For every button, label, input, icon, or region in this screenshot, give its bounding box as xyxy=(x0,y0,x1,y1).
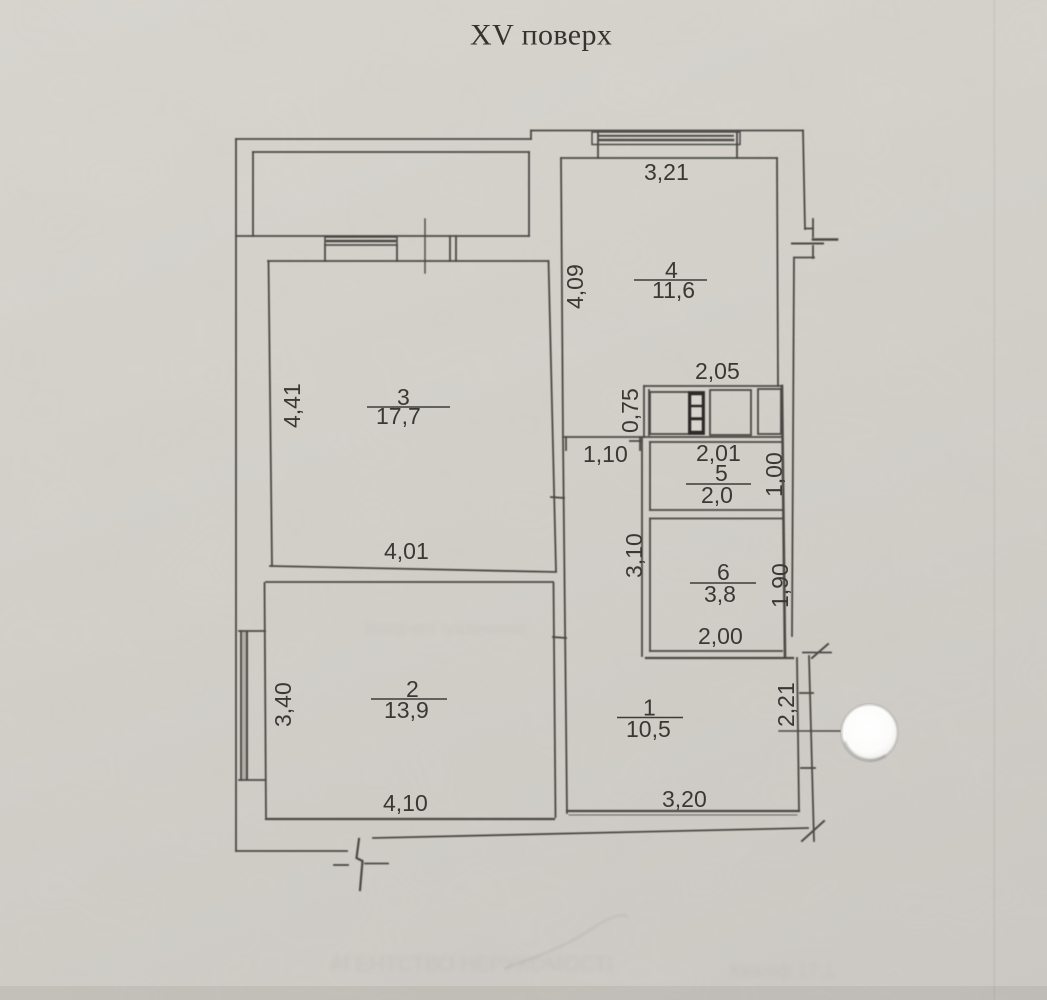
svg-text:17,7: 17,7 xyxy=(376,403,421,429)
svg-text:АГЕНТСТВО НЕРУХОМОСТІ: АГЕНТСТВО НЕРУХОМОСТІ xyxy=(330,953,613,976)
svg-text:Виявлені самочинно: Виявлені самочинно xyxy=(365,619,526,638)
svg-text:4,01: 4,01 xyxy=(384,538,429,564)
svg-text:3,10: 3,10 xyxy=(621,533,647,578)
svg-text:Кваліф 17,1: Кваліф 17,1 xyxy=(730,961,835,982)
svg-text:2,0: 2,0 xyxy=(701,482,733,508)
svg-text:4,09: 4,09 xyxy=(562,264,588,309)
svg-text:3,8: 3,8 xyxy=(704,581,736,607)
svg-text:4,10: 4,10 xyxy=(383,790,428,816)
svg-text:1,90: 1,90 xyxy=(767,563,793,608)
svg-text:2,05: 2,05 xyxy=(695,358,740,384)
svg-text:4,41: 4,41 xyxy=(279,383,305,428)
svg-text:3,20: 3,20 xyxy=(662,786,707,812)
svg-text:10,5: 10,5 xyxy=(626,716,671,742)
svg-text:0,75: 0,75 xyxy=(617,388,643,433)
svg-text:13,9: 13,9 xyxy=(384,697,429,723)
svg-text:1,00: 1,00 xyxy=(761,452,787,497)
svg-text:11,6: 11,6 xyxy=(652,277,695,303)
svg-text:2,21: 2,21 xyxy=(773,682,799,727)
svg-text:XV поверх: XV поверх xyxy=(470,19,612,52)
svg-text:3,21: 3,21 xyxy=(644,159,689,185)
svg-text:2,00: 2,00 xyxy=(698,623,743,649)
svg-text:1,10: 1,10 xyxy=(583,441,628,467)
svg-text:3,40: 3,40 xyxy=(270,682,296,727)
